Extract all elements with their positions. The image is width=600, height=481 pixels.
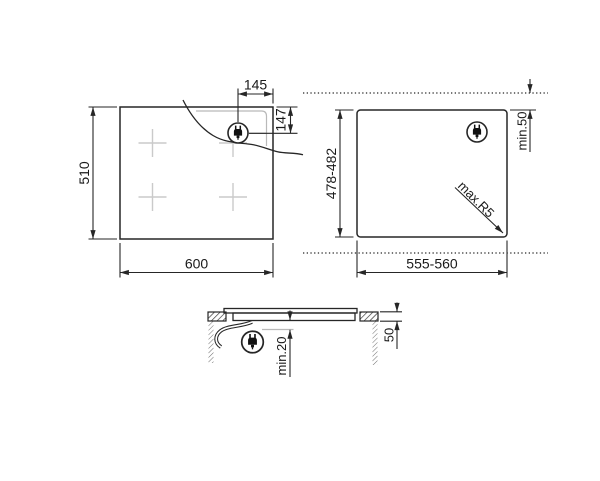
dim-label-147: 147 [273,108,289,132]
dimension-rear-clearance: min.50 [510,79,536,152]
cabinet-wall-left [209,321,214,363]
cutout-plan-view: 478-482 555-560 min.50 max.R5 [303,79,548,278]
dim-label-478-482: 478-482 [323,148,339,200]
hob-installation-diagram: 145 147 510 600 [0,0,600,481]
hob-body-section [233,313,355,321]
dimension-worktop-depth: 50 [380,303,402,350]
dim-label-maxR5: max.R5 [455,178,497,220]
dim-label-min50: min.50 [515,111,530,150]
dim-label-min20: min.20 [274,336,289,375]
worktop-section-left [208,312,226,321]
cabinet-wall-right [373,321,378,365]
corner-radius-callout: max.R5 [455,178,503,233]
dim-label-510: 510 [76,161,92,185]
dim-label-555-560: 555-560 [406,256,458,272]
dim-label-145: 145 [244,77,268,93]
power-plug-icon [242,331,264,353]
dimension-hob-width: 600 [120,243,273,278]
dimension-plug-offset-right: 145 [238,77,273,104]
dim-label-50: 50 [382,328,397,342]
power-plug-icon [228,123,248,143]
dim-label-600: 600 [185,256,209,272]
dimension-hob-depth: 510 [76,107,117,239]
installation-section-view: min.20 50 [208,303,402,378]
worktop-section-right [360,312,378,321]
dimension-cutout-width: 555-560 [357,241,507,278]
hob-top-view: 145 147 510 600 [76,77,303,278]
technical-drawing-page: 145 147 510 600 [0,0,600,481]
power-plug-icon [467,122,487,142]
dimension-cutout-depth: 478-482 [323,110,354,237]
hob-outline [120,107,273,239]
